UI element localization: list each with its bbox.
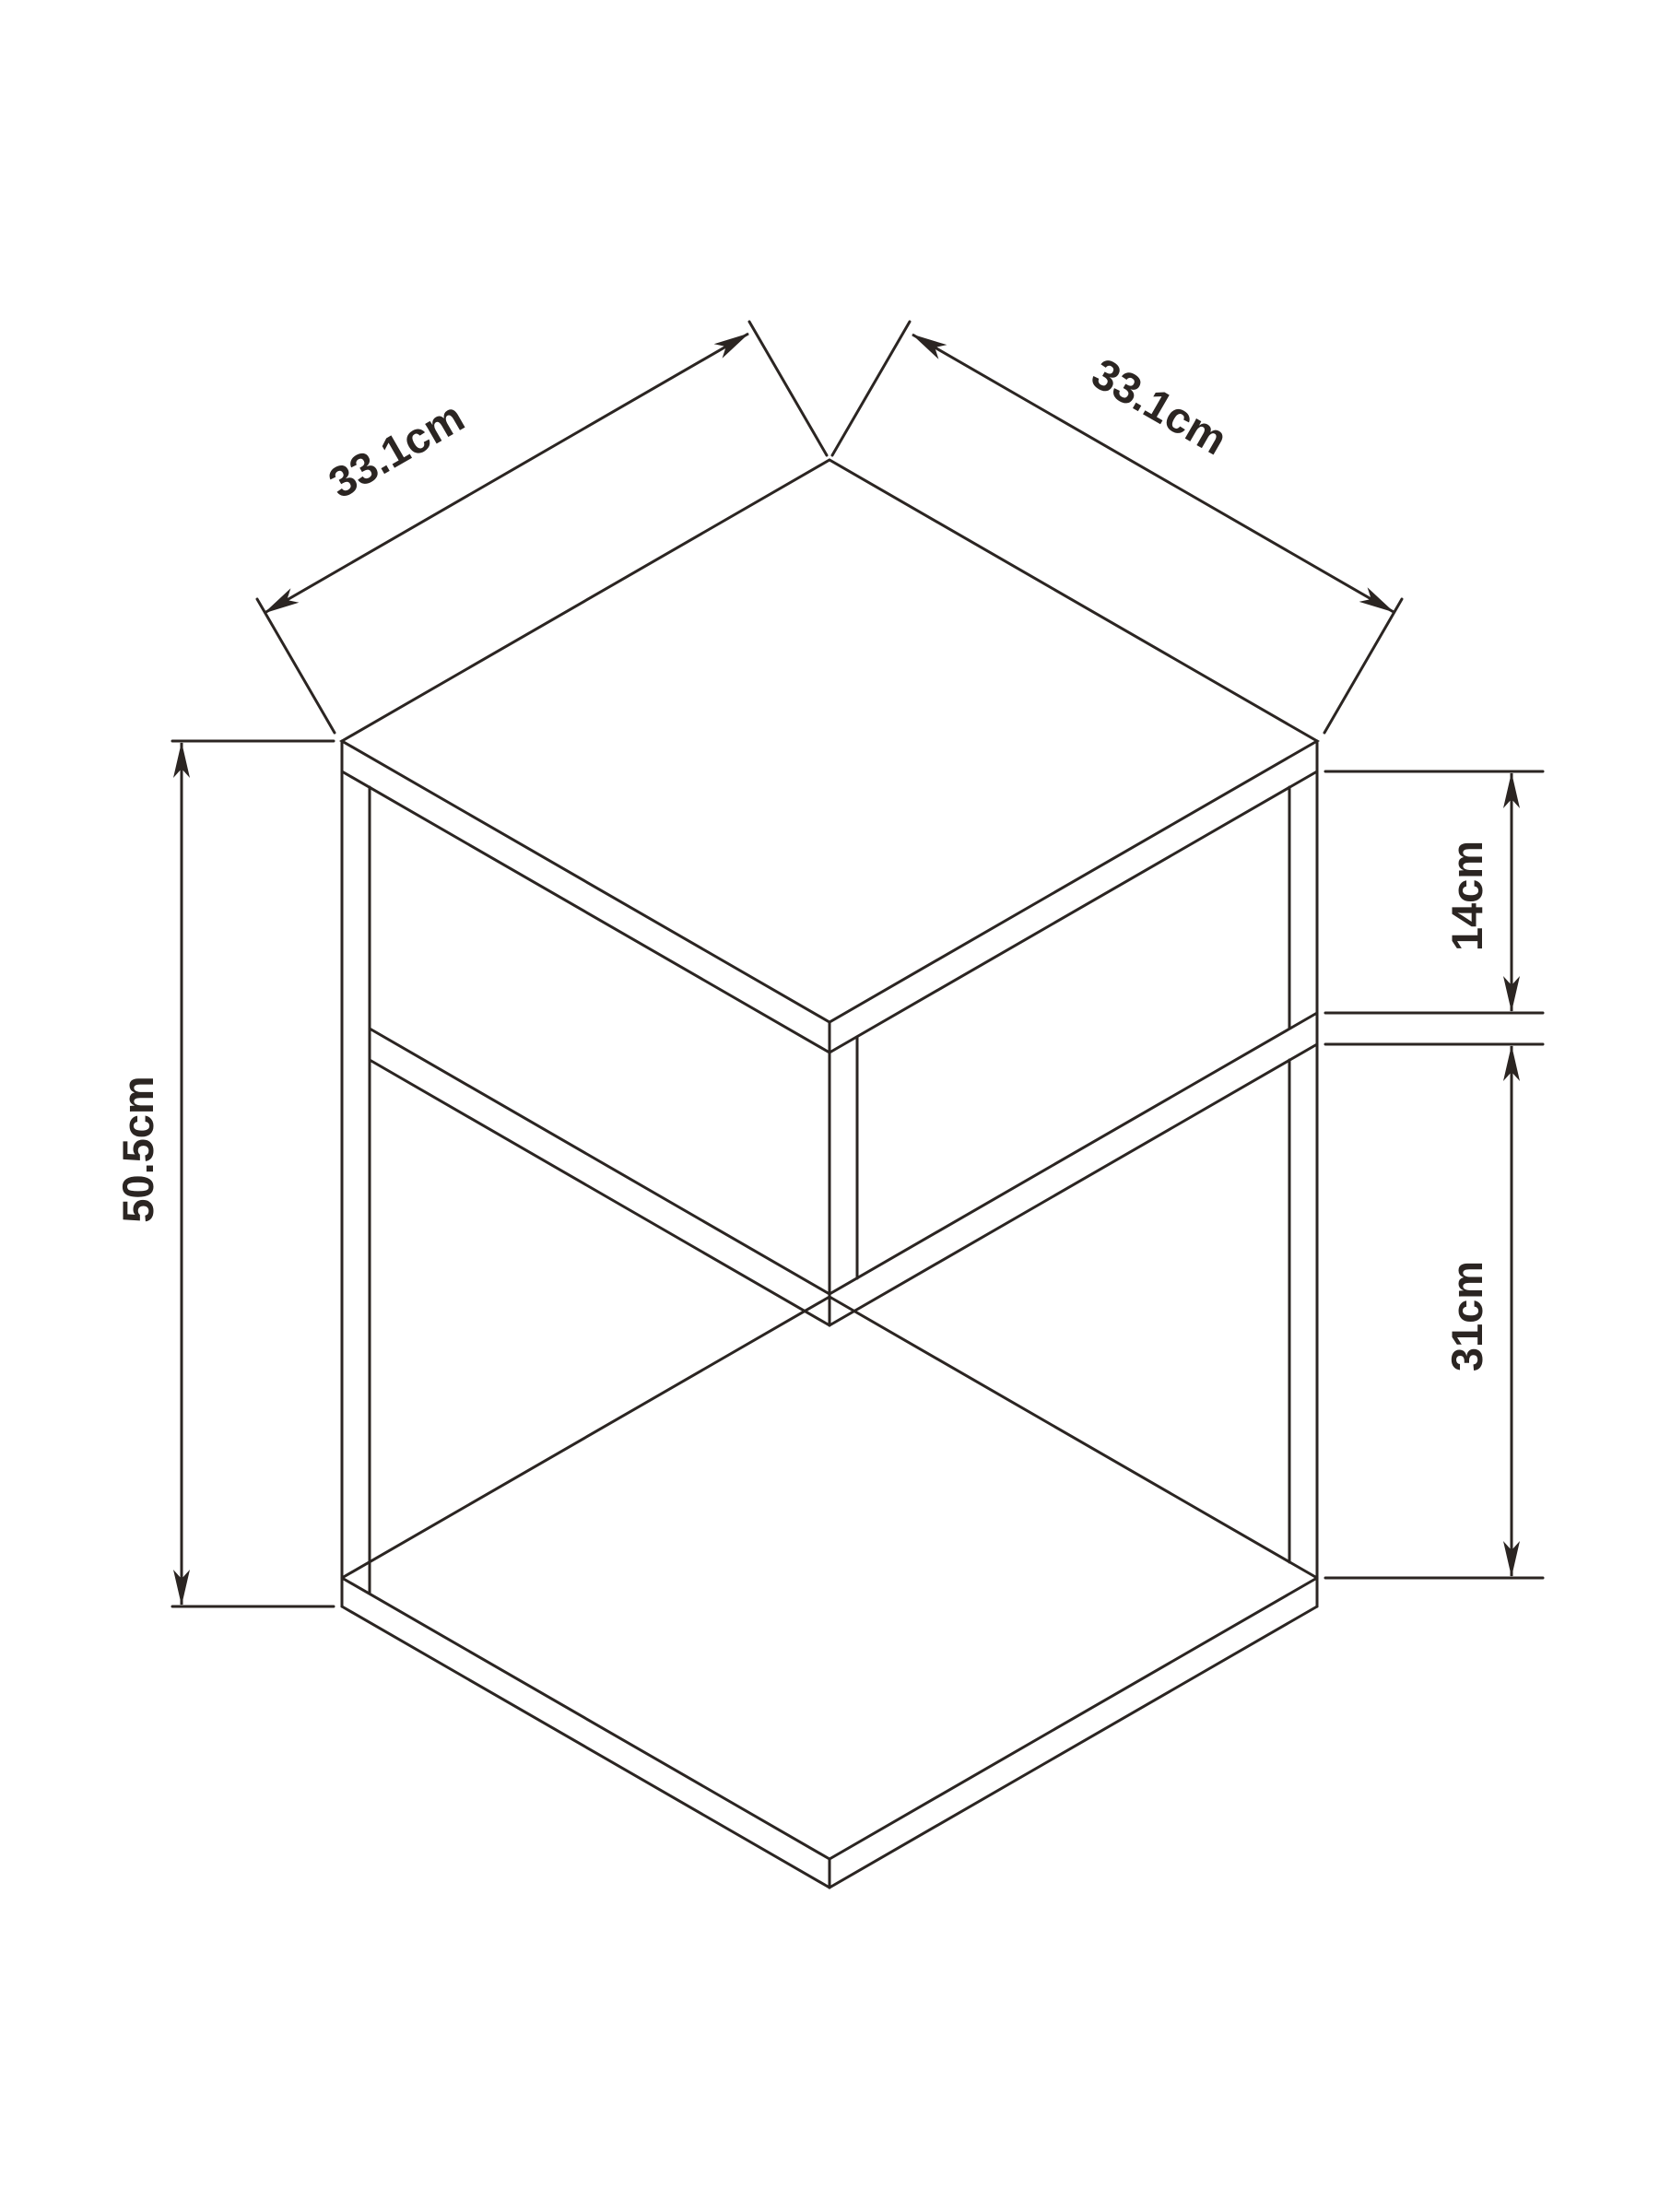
- height-dimension-label: 50.5cm: [113, 1076, 162, 1222]
- height-dimension: 50.5cm: [113, 741, 334, 1606]
- lower-gap-dimension-label: 31cm: [1442, 1261, 1491, 1371]
- middle-shelf-outline: [370, 1013, 1317, 1325]
- width-dimension-label: 33.1cm: [320, 392, 472, 508]
- diagram-page: 33.1cm 33.1cm 50.5cm 14cm 31cm: [0, 0, 1659, 2212]
- bottom-panel-outline: [342, 1297, 1317, 1888]
- lower-divider-panel-outline: [1289, 1044, 1317, 1578]
- top-panel-outline: [342, 460, 1317, 1053]
- upper-divider-panel-outline: [829, 771, 1317, 1294]
- upper-gap-dimension-label: 14cm: [1442, 841, 1491, 951]
- upper-gap-dimension: 14cm: [1325, 771, 1543, 1013]
- depth-dimension-right: 33.1cm: [832, 322, 1402, 733]
- width-dimension-left: 33.1cm: [257, 322, 827, 733]
- lower-gap-dimension: 31cm: [1325, 1044, 1543, 1578]
- left-side-panel-outline: [342, 771, 370, 1594]
- furniture-dimension-diagram: 33.1cm 33.1cm 50.5cm 14cm 31cm: [0, 0, 1659, 2212]
